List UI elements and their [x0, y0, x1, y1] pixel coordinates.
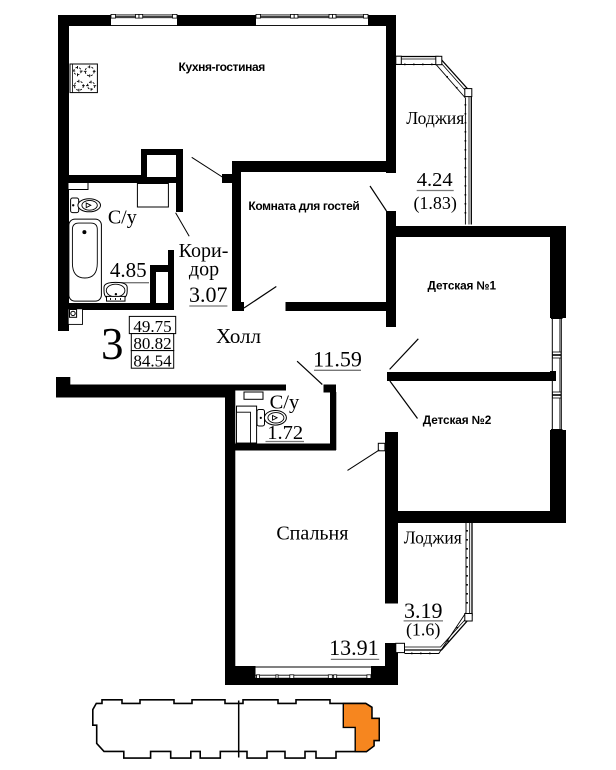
svg-text:3.07: 3.07	[189, 282, 228, 307]
svg-text:80.82: 80.82	[133, 334, 171, 353]
svg-text:С/у: С/у	[270, 391, 300, 413]
svg-text:Кухня-гостиная: Кухня-гостиная	[179, 60, 266, 74]
svg-text:С/у: С/у	[108, 207, 137, 229]
svg-text:4.85: 4.85	[110, 258, 147, 282]
svg-text:84.54: 84.54	[133, 351, 172, 370]
svg-text:Холл: Холл	[216, 324, 261, 348]
svg-text:Комната для гостей: Комната для гостей	[248, 199, 359, 213]
svg-text:Детская №2: Детская №2	[423, 413, 492, 427]
svg-text:11.59: 11.59	[313, 346, 362, 371]
svg-text:(1.6): (1.6)	[406, 620, 441, 641]
svg-text:(1.83): (1.83)	[413, 193, 457, 214]
svg-text:Лоджия: Лоджия	[404, 528, 462, 548]
svg-text:3: 3	[101, 319, 124, 369]
svg-text:13.91: 13.91	[329, 635, 379, 660]
svg-text:Спальня: Спальня	[276, 523, 348, 545]
svg-text:Лоджия: Лоджия	[406, 108, 464, 128]
svg-text:4.24: 4.24	[417, 169, 453, 191]
svg-text:дор: дор	[189, 259, 219, 281]
svg-text:Детская №1: Детская №1	[428, 279, 497, 293]
